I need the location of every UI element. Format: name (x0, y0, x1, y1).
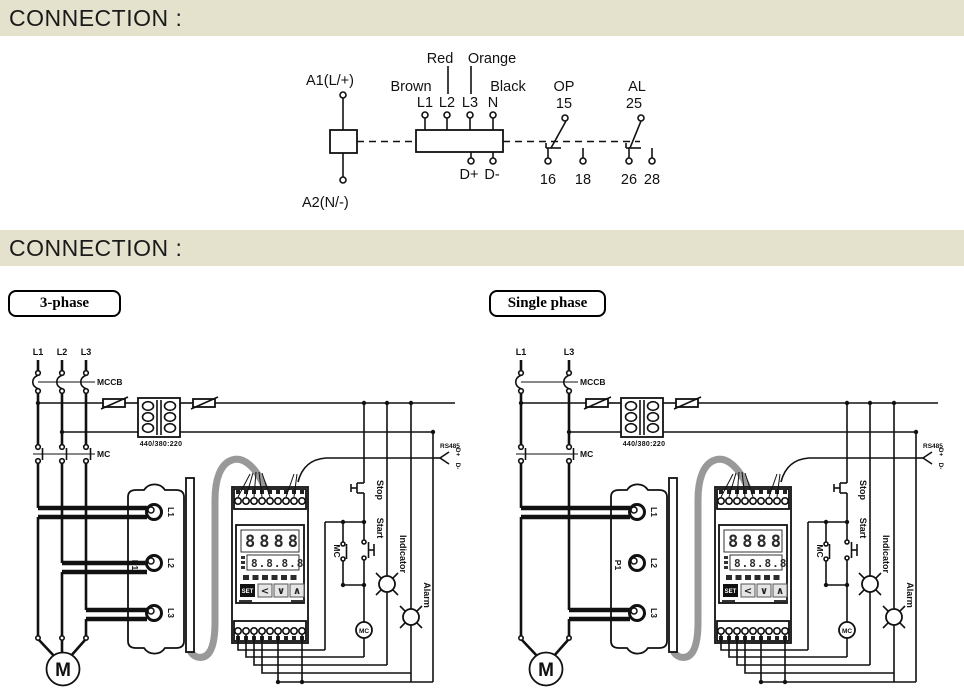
wire-color-black: Black (490, 79, 526, 95)
terminal-dminus: D- (484, 167, 499, 183)
section-header-2: CONNECTION : (0, 230, 964, 266)
section-header-1-title: CONNECTION : (0, 0, 964, 36)
section-header-1: CONNECTION : (0, 0, 964, 36)
op-terminal-16: 16 (540, 172, 556, 188)
single-phase-tag: Single phase (489, 290, 606, 317)
wire-color-orange: Orange (468, 51, 516, 67)
al-alarm-contact: AL 25 26 28 (621, 79, 660, 188)
op-label: OP (554, 79, 575, 95)
wiring-diagrams: L1 L3 MCCB MC 440/380:220 (0, 330, 964, 688)
phase-l2-label: L2 (57, 347, 68, 357)
terminal-connection-diagram: A1(L/+) A2(N/-) L1 L2 L3 N Brown Black R… (0, 37, 964, 229)
terminal-a2-label: A2(N/-) (302, 195, 349, 211)
terminal-l1: L1 (417, 95, 433, 111)
al-terminal-26: 26 (621, 172, 637, 188)
terminal-dplus: D+ (460, 167, 479, 183)
terminal-l2: L2 (439, 95, 455, 111)
terminal-n: N (488, 95, 498, 111)
op-terminal-15: 15 (556, 96, 572, 112)
power-terminal-block: L1 L2 L3 N Brown Black Red Orange D+ D- (390, 51, 526, 183)
section-header-2-title: CONNECTION : (0, 230, 964, 266)
terminal-l3: L3 (462, 95, 478, 111)
terminal-a1-label: A1(L/+) (306, 73, 354, 89)
op-output-contact: OP 15 16 18 (540, 79, 591, 188)
supply-branch: A1(L/+) A2(N/-) (302, 73, 357, 211)
al-terminal-25: 25 (626, 96, 642, 112)
single-phase-bus2-tap (567, 430, 571, 434)
al-label: AL (628, 79, 646, 95)
op-terminal-18: 18 (575, 172, 591, 188)
wire-color-red: Red (427, 51, 454, 67)
wire-color-brown: Brown (390, 79, 431, 95)
al-terminal-28: 28 (644, 172, 660, 188)
single-phase-diagram (516, 347, 944, 686)
three-phase-diagram: L2 (33, 347, 461, 686)
three-phase-tag: 3-phase (8, 290, 121, 317)
